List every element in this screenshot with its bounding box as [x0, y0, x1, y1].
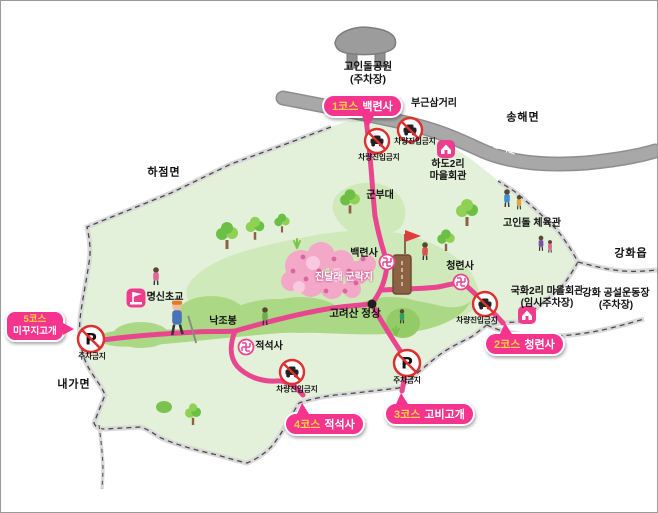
- label-no-entry-4: 차량진입금지: [276, 385, 317, 394]
- badge-pointer: [362, 116, 374, 127]
- label-military-base: 군부대: [366, 190, 394, 202]
- label-baekryeonsa: 백련사: [350, 248, 378, 260]
- badge-pointer: [500, 323, 512, 334]
- no-entry-icon-3: [473, 292, 497, 316]
- label-jeokseoksa: 적석사: [255, 341, 283, 353]
- label-hado-hall: 하도2리 마을회관: [430, 159, 467, 183]
- label-no-entry-1: 차량진입금지: [358, 153, 399, 162]
- badge-course-5: 5코스 미꾸지고개: [5, 310, 65, 342]
- label-region-hajeom: 하점면: [147, 166, 180, 179]
- no-entry-icon-1: [365, 129, 389, 153]
- label-summit: 고려산 정상: [329, 308, 380, 321]
- trail-map: P P 고인돌공원 (주차장) 부근삼거리 송해면 48번 국도: [0, 0, 658, 513]
- badge-pointer: [63, 323, 74, 335]
- school-icon-myeongsin: [127, 289, 146, 308]
- badge-pointer: [297, 403, 309, 414]
- no-entry-icon-4: [280, 360, 304, 384]
- label-nakjobong: 낙조봉: [209, 316, 237, 328]
- label-stadium: 강화 공설운동장 (주차장): [582, 288, 649, 312]
- label-dolmen-gym: 고인돌 체육관: [503, 218, 561, 230]
- label-region-naega: 내가면: [57, 378, 90, 391]
- label-cheongryeonsa: 청련사: [446, 261, 474, 273]
- label-region-ganghwa-eup: 강화읍: [614, 247, 647, 260]
- label-gukhwa-hall: 국화2리 마을회관 (임시주차장): [511, 286, 584, 310]
- temple-icon-baekryeonsa: [380, 255, 395, 270]
- badge-pointer: [396, 393, 408, 404]
- label-no-parking-west: 주차금지: [78, 352, 106, 361]
- badge-course-3: 3코스 고비고개: [384, 402, 475, 426]
- label-no-parking-south: 주차금지: [393, 376, 421, 385]
- label-azalea-colony: 진달래 군락지: [315, 272, 373, 284]
- label-region-songhae: 송해면: [506, 111, 539, 124]
- badge-course-4: 4코스 적석사: [284, 412, 365, 436]
- no-parking-icon-west: P: [78, 326, 104, 352]
- badge-course-2: 2코스 청련사: [484, 332, 565, 356]
- label-dolmen-park: 고인돌공원 (주차장): [344, 60, 392, 85]
- temple-icon-jeokseoksa: [239, 340, 254, 355]
- label-myeongsin-school: 명신초교: [147, 292, 184, 304]
- label-no-entry-3: 차량진입금지: [456, 316, 497, 325]
- temple-icon-cheongryeonsa: [454, 275, 469, 290]
- label-no-entry-2: 차량진입금지: [394, 137, 435, 146]
- house-icon-hado: [437, 140, 455, 158]
- label-bugeun-junction: 부근삼거리: [411, 98, 457, 110]
- no-parking-icon-south: P: [394, 350, 420, 376]
- badge-course-1: 1코스 백련사: [322, 94, 403, 118]
